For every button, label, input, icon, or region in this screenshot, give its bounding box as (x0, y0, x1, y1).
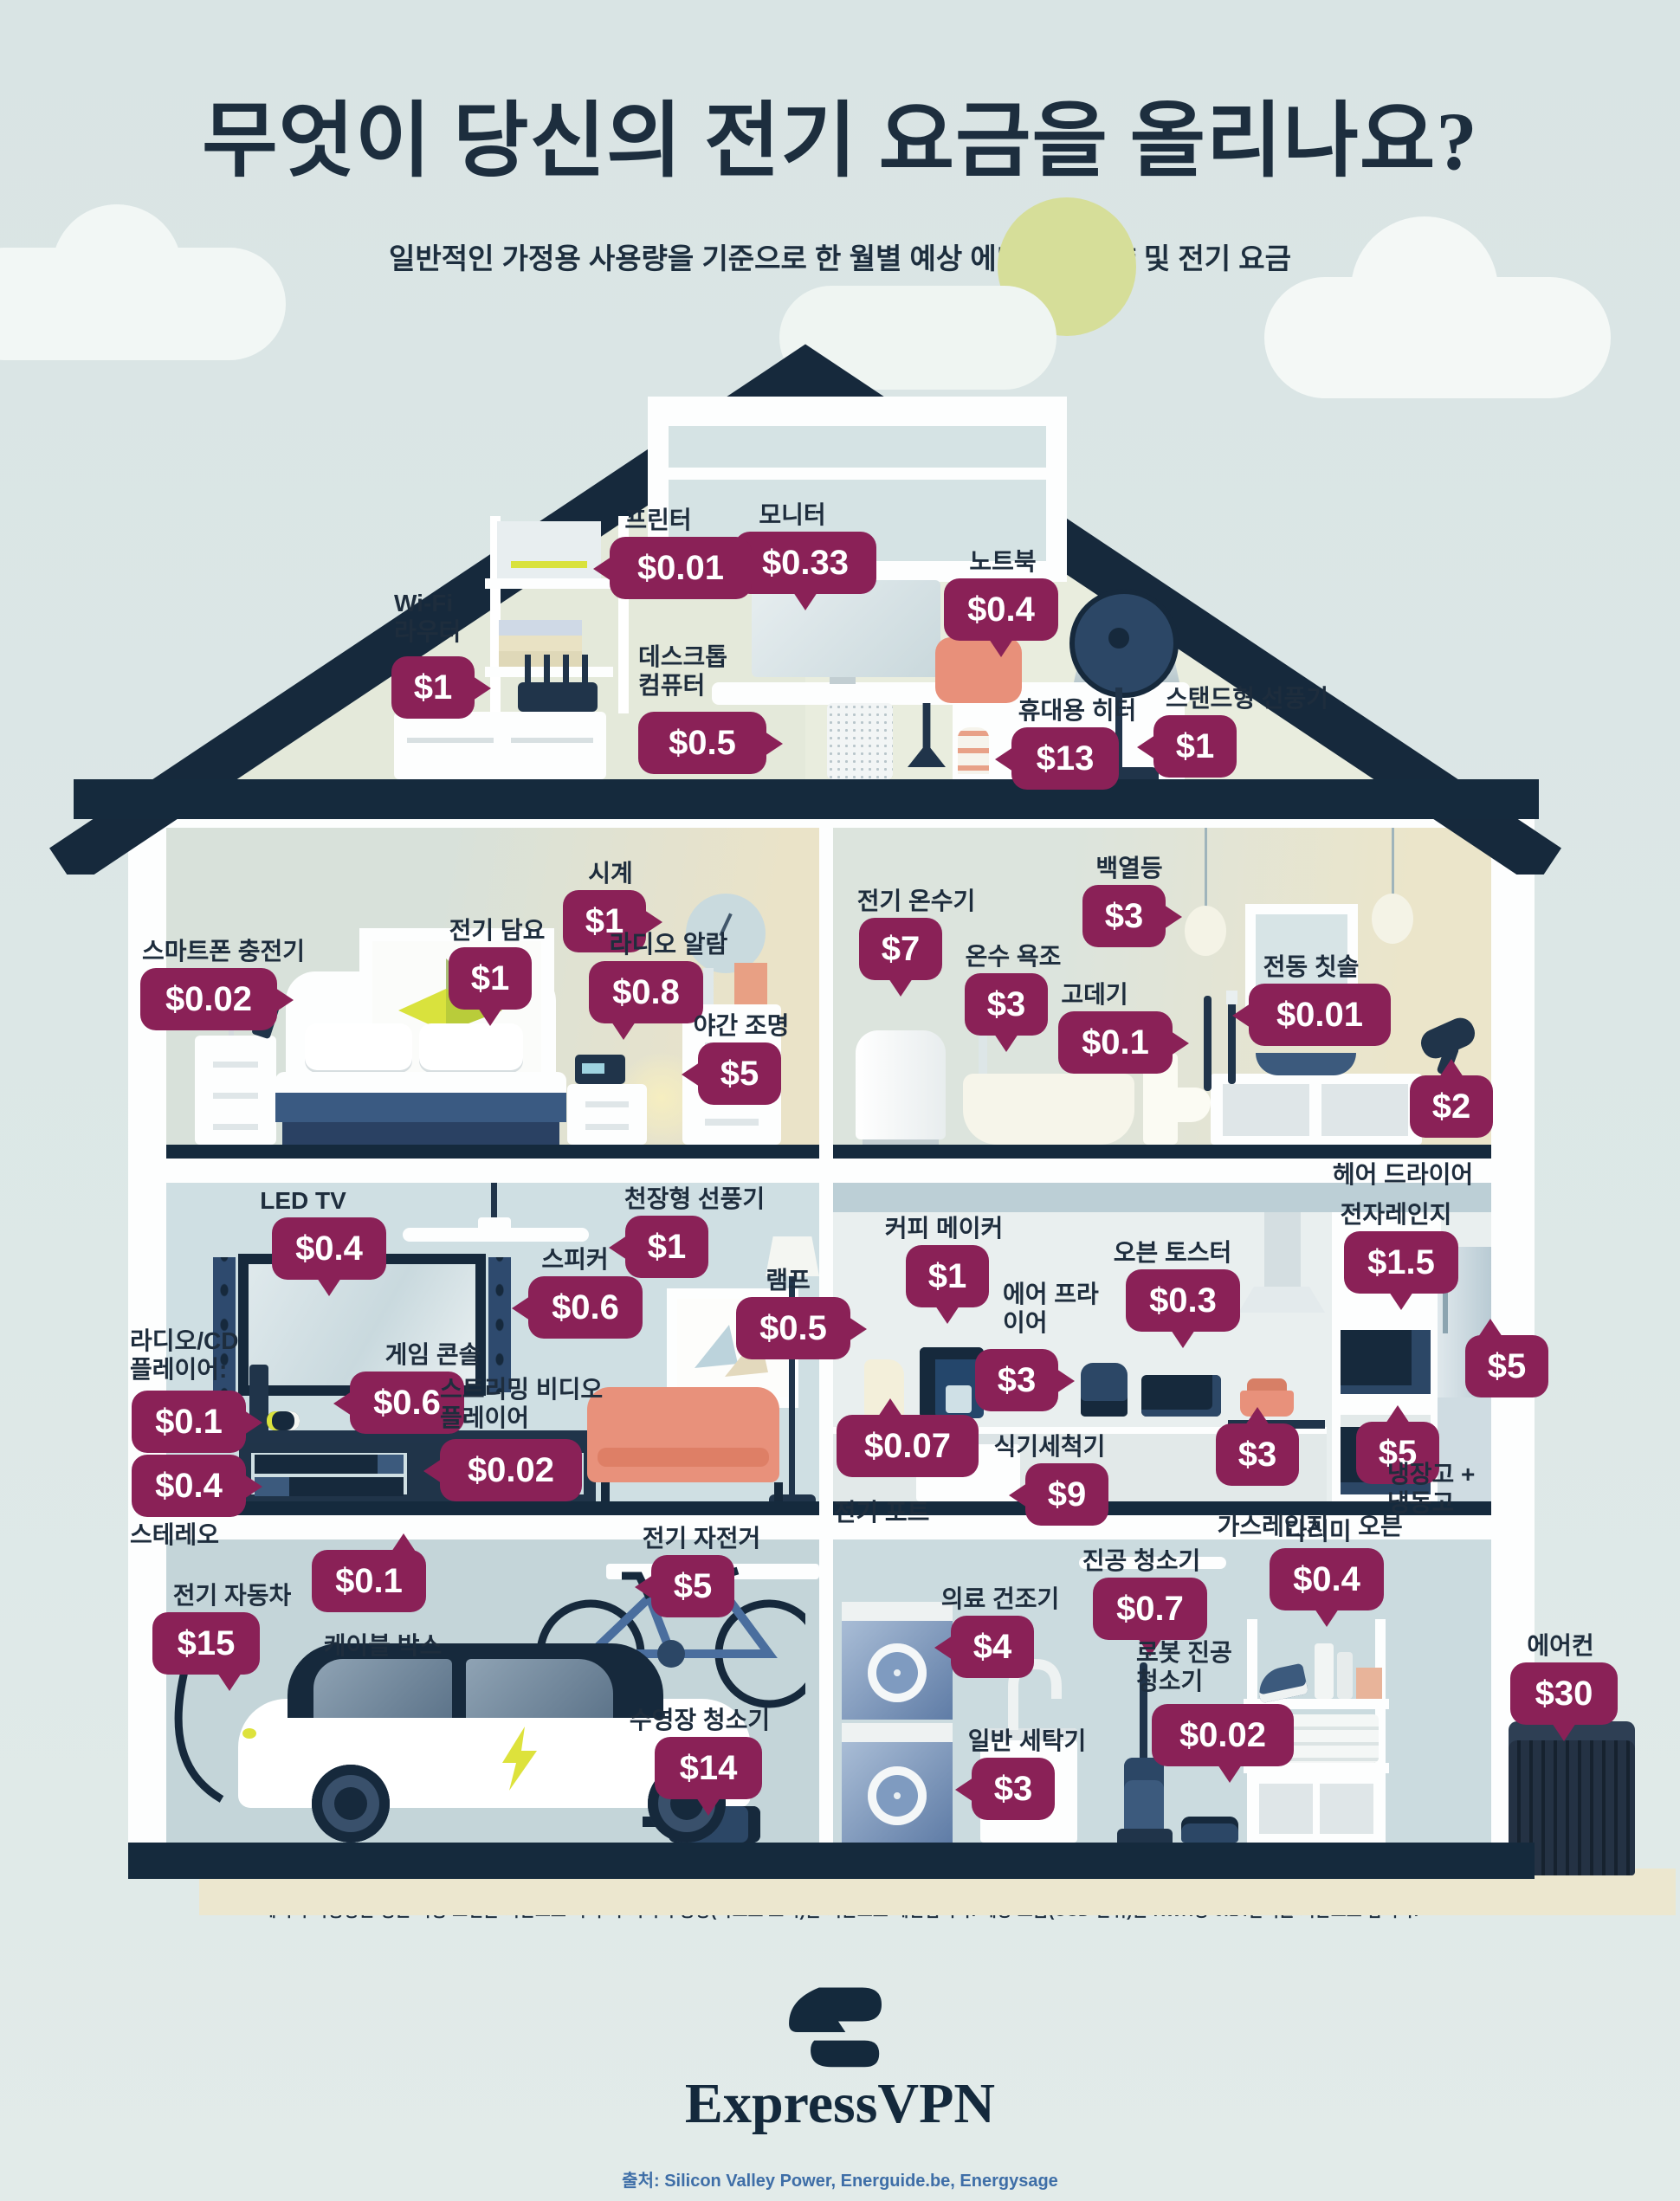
vanity-cabinet (1211, 1074, 1422, 1145)
price-ceiling-fan: $1 (648, 1228, 687, 1267)
bubble-tail (275, 988, 294, 1012)
pot-lid (1247, 1378, 1287, 1391)
label-air-conditioner: 에어컨 (1527, 1631, 1593, 1660)
price-bubble-standing-fan: $1 (1153, 715, 1237, 778)
tub-faucet (979, 1036, 987, 1075)
label-microwave: 전자레인지 (1341, 1200, 1452, 1229)
air-fryer-unit (1081, 1363, 1128, 1417)
expressvpn-logo-icon (778, 1983, 899, 2069)
curling-iron (1204, 996, 1212, 1091)
price-bubble-hair-dryer: $2 (1410, 1075, 1493, 1138)
attic-floor-slab (74, 779, 1539, 819)
range-hood-chimney (1264, 1212, 1301, 1287)
price-portable-heater: $13 (1037, 739, 1095, 778)
price-bubble-coffee-maker: $1 (906, 1245, 989, 1307)
bubble-tail (1164, 905, 1182, 929)
price-bubble-ceiling-fan: $1 (625, 1216, 708, 1278)
pendant-cord-1 (1205, 828, 1207, 907)
price-bubble-incandescent-bulb: $3 (1082, 885, 1166, 947)
bathtub (963, 1074, 1134, 1145)
microwave-unit (1341, 1330, 1431, 1394)
toaster-oven-unit (1141, 1375, 1221, 1417)
price-bubble-iron: $0.4 (1270, 1548, 1384, 1610)
price-bubble-radio-cd-player: $0.1 (132, 1391, 246, 1453)
price-printer: $0.01 (637, 549, 724, 588)
car-window-2 (466, 1659, 613, 1718)
price-vacuum-cleaner: $0.7 (1116, 1590, 1184, 1629)
bubble-tail (217, 1673, 242, 1691)
price-bubble-laptop: $0.4 (944, 578, 1058, 641)
pendant-bulb-2 (1372, 894, 1413, 944)
price-air-conditioner: $30 (1535, 1675, 1593, 1714)
label-night-light: 야간 조명 (694, 1011, 790, 1040)
price-bubble-wifi-router: $1 (391, 656, 475, 719)
attic-cabinet-lines (407, 738, 494, 743)
price-bubble-electric-toothbrush: $0.01 (1249, 984, 1391, 1046)
brand-wordmark: ExpressVPN (0, 2071, 1680, 2137)
price-bubble-toaster-oven: $0.3 (1126, 1269, 1240, 1332)
living-floor (166, 1501, 819, 1515)
bedroom-floor (166, 1145, 819, 1159)
price-bubble-speakers: $0.6 (528, 1276, 643, 1339)
speaker-right (488, 1257, 511, 1392)
bubble-tail (635, 1575, 653, 1599)
sink-basin (1256, 1053, 1356, 1075)
label-led-tv: LED TV (260, 1186, 346, 1215)
bubble-tail (1171, 1330, 1195, 1348)
bed-pillow-2 (419, 1023, 523, 1070)
price-bubble-printer: $0.01 (610, 537, 752, 599)
price-bubble-stereo: $0.4 (132, 1455, 246, 1517)
bathroom-floor (833, 1145, 1491, 1159)
attic-cabinet-lines2 (511, 738, 593, 743)
label-electric-kettle: 전기 포트 (834, 1498, 930, 1526)
price-bubble-portable-heater: $13 (1011, 727, 1119, 790)
price-electric-bike: $5 (674, 1567, 713, 1606)
price-monitor: $0.33 (762, 544, 849, 583)
bubble-tail (955, 1778, 973, 1802)
bubble-tail (994, 1034, 1018, 1052)
pendant-bulb-1 (1185, 906, 1226, 956)
price-bubble-electric-water-heater: $7 (859, 918, 942, 980)
label-air-fryer: 에어 프라 이어 (1003, 1280, 1099, 1337)
price-toaster-oven: $0.3 (1149, 1281, 1217, 1320)
bubble-tail (473, 676, 491, 700)
price-bubble-monitor: $0.33 (734, 532, 876, 594)
price-bubble-pool-cleaner: $14 (655, 1737, 762, 1799)
printer (497, 521, 601, 587)
bubble-tail (391, 1533, 416, 1552)
price-bubble-led-tv: $0.4 (272, 1217, 386, 1280)
bubble-tail (1218, 1765, 1242, 1783)
label-laptop: 노트북 (969, 547, 1036, 576)
price-bubble-desktop-computer: $0.5 (638, 712, 766, 774)
price-bubble-fridge-freezer: $5 (1465, 1335, 1548, 1397)
price-electric-water-heater: $7 (882, 930, 921, 969)
laundry-box (1356, 1668, 1382, 1699)
price-gas-range: $3 (1238, 1436, 1277, 1475)
price-hair-dryer: $2 (1432, 1088, 1471, 1126)
bubble-tail (765, 732, 783, 756)
nightstand-left (195, 1036, 276, 1145)
bubble-tail (878, 1398, 902, 1417)
label-smartphone-charger: 스마트폰 충전기 (142, 937, 305, 965)
car-lightning-decal (495, 1727, 544, 1791)
bubble-tail (1552, 1723, 1576, 1741)
bubble-tail (478, 1008, 502, 1026)
dresser-frame-decor (734, 963, 767, 1004)
radio-cd-player-unit (255, 1455, 404, 1474)
attic-window-bar (648, 468, 1067, 480)
standing-fan-hub (1108, 628, 1129, 649)
toothbrush-head (1226, 991, 1237, 1004)
label-incandescent-bulb: 백열등 (1095, 854, 1162, 882)
price-bubble-electric-blanket: $1 (449, 947, 532, 1010)
game-controller (267, 1411, 300, 1430)
price-bubble-vacuum-cleaner: $0.7 (1093, 1578, 1207, 1640)
bubble-tail (989, 639, 1013, 657)
price-incandescent-bulb: $3 (1105, 897, 1144, 936)
label-printer: 프린터 (624, 506, 691, 534)
label-portable-heater: 휴대용 히터 (1018, 696, 1137, 725)
label-stereo: 스테레오 (130, 1520, 219, 1549)
bubble-tail (1315, 1609, 1339, 1627)
desktop-tower (827, 703, 893, 779)
price-led-tv: $0.4 (295, 1230, 363, 1268)
bubble-tail (1439, 1059, 1464, 1077)
price-curling-iron: $0.1 (1082, 1023, 1149, 1062)
label-clothes-dryer: 의료 건조기 (941, 1585, 1060, 1613)
label-toaster-oven: 오븐 토스터 (1114, 1238, 1232, 1267)
label-ceiling-fan: 천장형 선풍기 (624, 1184, 765, 1213)
price-pool-cleaner: $14 (680, 1749, 738, 1788)
robot-vacuum-unit (1181, 1817, 1238, 1843)
wifi-router (518, 682, 598, 712)
price-bubble-streaming-player: $0.02 (440, 1439, 582, 1501)
price-standing-fan: $1 (1176, 727, 1215, 766)
bubble-tail (423, 1459, 442, 1483)
price-iron: $0.4 (1293, 1560, 1360, 1599)
source-line: 출처: Silicon Valley Power, Energuide.be, … (0, 2166, 1680, 2191)
bubble-tail (593, 557, 611, 581)
price-wifi-router: $1 (414, 668, 453, 707)
price-electric-car: $15 (178, 1624, 236, 1663)
bubble-tail (1137, 735, 1155, 759)
bubble-tail (934, 1636, 953, 1660)
bed-pillow-1 (305, 1023, 412, 1070)
price-bubble-air-conditioner: $30 (1510, 1662, 1618, 1725)
bed-blanket (275, 1093, 566, 1122)
bubble-tail (1386, 1405, 1410, 1423)
price-coffee-maker: $1 (928, 1257, 967, 1296)
label-coffee-maker: 커피 메이커 (885, 1214, 1004, 1242)
pendant-cord-2 (1392, 828, 1394, 895)
label-radio-cd-player: 라디오/CD 플레이어: (130, 1326, 239, 1384)
detergent-bottle-1 (1315, 1643, 1334, 1699)
bubble-tail (611, 1022, 636, 1040)
couch-seat (598, 1448, 769, 1467)
attic-cabinet (394, 712, 606, 779)
price-bubble-electric-car: $15 (152, 1612, 260, 1675)
bubble-tail (609, 1236, 627, 1260)
label-curling-iron: 고데기 (1061, 980, 1128, 1009)
dresser-bottle (703, 968, 714, 1004)
car-headlight (242, 1728, 256, 1739)
price-bubble-dishwasher: $9 (1025, 1463, 1108, 1526)
bubble-tail (935, 1306, 960, 1324)
price-bubble-night-light: $5 (698, 1042, 781, 1105)
portable-heater (951, 719, 996, 779)
price-bubble-washing-machine: $3 (972, 1758, 1055, 1820)
price-bubble-curling-iron: $0.1 (1058, 1011, 1173, 1074)
bed-base (282, 1122, 559, 1145)
label-electric-toothbrush: 전동 칫솔 (1263, 952, 1360, 981)
price-bubble-lamp: $0.5 (736, 1297, 850, 1359)
price-bubble-smartphone-charger: $0.02 (140, 968, 277, 1030)
label-robot-vacuum: 로봇 진공 청소기 (1136, 1638, 1232, 1695)
ceiling-fan-motor (478, 1217, 511, 1233)
label-cable-box: 케이블 박스 (324, 1631, 443, 1660)
price-smartphone-charger: $0.02 (165, 980, 252, 1019)
label-iron: 다리미 (1284, 1517, 1351, 1546)
price-microwave: $1.5 (1367, 1243, 1435, 1282)
price-bubble-air-fryer: $3 (975, 1349, 1058, 1411)
label-dishwasher: 식기세척기 (994, 1432, 1106, 1461)
price-night-light: $5 (720, 1055, 759, 1094)
coffee-carafe (946, 1385, 972, 1413)
bubble-tail (1056, 1369, 1075, 1393)
printer-stripe (511, 561, 587, 568)
label-washing-machine: 일반 세탁기 (968, 1727, 1087, 1755)
label-standing-fan: 스탠드형 선풍기 (1166, 684, 1328, 713)
price-stereo: $0.4 (155, 1467, 223, 1506)
price-speakers: $0.6 (552, 1288, 619, 1327)
price-bubble-robot-vacuum: $0.02 (1152, 1704, 1294, 1766)
label-monitor: 모니터 (759, 500, 825, 529)
bubble-tail (512, 1296, 530, 1320)
bubble-tail (1232, 1004, 1250, 1028)
bubble-tail (1171, 1031, 1189, 1055)
label-speakers: 스피커 (541, 1245, 608, 1274)
label-pool-cleaner: 수영장 청소기 (630, 1706, 770, 1734)
price-cable-box: $0.1 (335, 1562, 403, 1601)
wifi-router-antennas (525, 655, 591, 682)
bottom-slab (128, 1843, 1535, 1879)
bubble-tail (793, 592, 817, 610)
upright-vacuum-head (1117, 1829, 1173, 1843)
label-desktop-computer: 데스크톱 컴퓨터 (638, 642, 727, 700)
bubble-tail (849, 1317, 867, 1341)
price-bubble-electric-kettle: $0.07 (837, 1415, 979, 1477)
bubble-tail (333, 1391, 352, 1416)
price-desktop-computer: $0.5 (669, 724, 736, 763)
upright-vacuum-body (1124, 1758, 1164, 1832)
washer-door (868, 1766, 927, 1825)
price-game-console: $0.6 (373, 1384, 441, 1423)
price-fridge-freezer: $5 (1488, 1347, 1527, 1386)
bubble-tail (244, 1475, 262, 1499)
bubble-tail (682, 1062, 700, 1087)
price-bubble-radio-alarm: $0.8 (589, 961, 703, 1023)
price-bubble-hot-tub: $3 (965, 973, 1048, 1036)
price-radio-cd-player: $0.1 (155, 1403, 223, 1442)
label-fridge-freezer: 냉장고 + 냉동고 (1387, 1460, 1475, 1517)
radio-alarm-display (582, 1063, 604, 1074)
bubble-tail (1009, 1483, 1027, 1507)
price-laptop: $0.4 (967, 591, 1035, 629)
label-electric-blanket: 전기 담요 (449, 916, 546, 945)
bubble-tail (1478, 1319, 1502, 1337)
infographic-canvas: 무엇이 당신의 전기 요금을 올리나요? 일반적인 가정용 사용량을 기준으로 … (0, 0, 1680, 2201)
desk-monitor (752, 580, 940, 677)
monitor-stand (830, 677, 856, 684)
price-electric-toothbrush: $0.01 (1276, 996, 1363, 1035)
price-washing-machine: $3 (994, 1770, 1033, 1809)
price-electric-blanket: $1 (471, 959, 510, 998)
label-radio-alarm: 라디오 알람 (610, 930, 728, 958)
price-electric-kettle: $0.07 (864, 1427, 951, 1466)
price-bubble-microwave: $1.5 (1344, 1231, 1458, 1294)
price-lamp: $0.5 (759, 1309, 827, 1348)
couch-legs (601, 1482, 783, 1501)
price-bubble-electric-bike: $5 (651, 1555, 734, 1617)
dryer-door (868, 1643, 927, 1702)
label-hair-dryer: 헤어 드라이어 (1333, 1160, 1473, 1189)
label-wifi-router: Wi-Fi 라우터 (394, 589, 461, 646)
stereo-unit (255, 1477, 404, 1496)
bubble-tail (888, 978, 913, 997)
label-hot-tub: 온수 욕조 (966, 942, 1062, 971)
detergent-bottle-2 (1337, 1652, 1353, 1699)
bubble-tail (317, 1278, 341, 1296)
bubble-tail (995, 747, 1013, 771)
price-robot-vacuum: $0.02 (1179, 1716, 1266, 1755)
price-clothes-dryer: $4 (973, 1628, 1012, 1667)
label-electric-car: 전기 자동차 (173, 1581, 292, 1610)
couch (587, 1387, 779, 1482)
price-bubble-cable-box: $0.1 (312, 1550, 426, 1612)
price-bubble-clothes-dryer: $4 (951, 1616, 1034, 1678)
label-electric-bike: 전기 자전거 (643, 1524, 761, 1552)
car-window-1 (313, 1659, 452, 1718)
label-wall-clock: 시계 (588, 859, 633, 887)
car-wheel-1 (312, 1765, 390, 1843)
label-vacuum-cleaner: 진공 청소기 (1082, 1546, 1201, 1575)
price-streaming-player: $0.02 (468, 1451, 554, 1490)
price-radio-alarm: $0.8 (612, 973, 680, 1012)
price-hot-tub: $3 (987, 985, 1026, 1024)
label-game-console: 게임 콘솔 (385, 1340, 481, 1369)
bubble-tail (244, 1410, 262, 1435)
label-streaming-player: 스트리밍 비디오 플레이어 (440, 1375, 603, 1432)
label-lamp: 램프 (766, 1266, 811, 1294)
price-dishwasher: $9 (1048, 1475, 1087, 1514)
nightstand-right (567, 1084, 647, 1145)
price-bubble-gas-range: $3 (1216, 1423, 1299, 1486)
bubble-tail (1245, 1407, 1270, 1425)
water-heater (856, 1030, 946, 1139)
laundry-lower-cabinet (1250, 1773, 1382, 1843)
bubble-tail (1389, 1292, 1413, 1310)
label-electric-water-heater: 전기 온수기 (857, 887, 976, 915)
bubble-tail (696, 1798, 720, 1816)
price-air-fryer: $3 (998, 1361, 1037, 1400)
